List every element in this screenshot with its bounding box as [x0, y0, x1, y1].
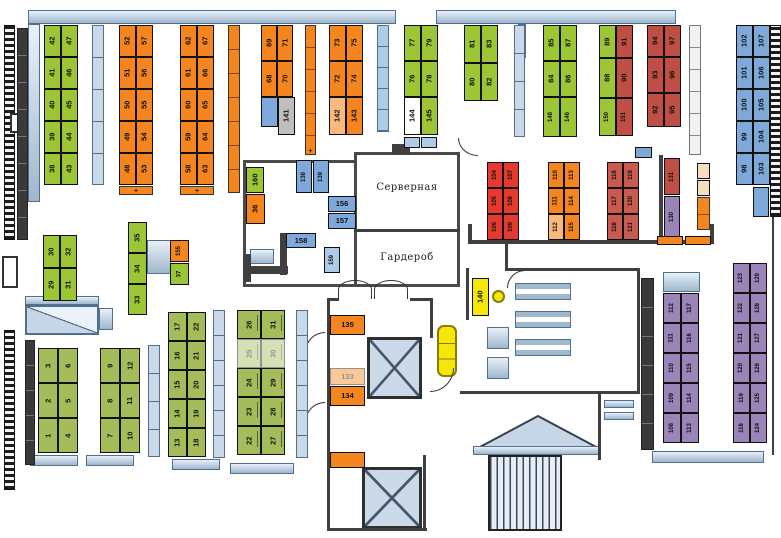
room-divider-wall — [354, 229, 460, 232]
desk-129[interactable]: 129 — [750, 263, 767, 293]
desk-68[interactable]: 68 — [261, 61, 277, 97]
desk-42[interactable]: 42 — [44, 25, 61, 57]
desk-24[interactable]: 24 — [237, 368, 261, 397]
desk-cell[interactable] — [421, 137, 437, 148]
desk-50[interactable]: 50 — [119, 89, 136, 121]
desk-77[interactable]: 77 — [404, 25, 421, 61]
desk-109[interactable]: 109 — [503, 214, 519, 240]
desk-155[interactable]: 155 — [170, 240, 189, 262]
shelf: + — [180, 186, 214, 195]
desk-67[interactable]: 67 — [197, 25, 214, 57]
wall — [460, 391, 640, 394]
desk-144[interactable]: 144 — [404, 97, 421, 135]
desk-52[interactable]: 52 — [119, 25, 136, 57]
desk-59[interactable]: 59 — [180, 121, 197, 153]
wall — [430, 298, 433, 338]
meeting-table — [516, 284, 570, 299]
desk-cell[interactable] — [685, 236, 711, 245]
desk-31[interactable]: 31 — [261, 310, 285, 339]
server-room-label: Серверная — [357, 182, 457, 193]
desk-110[interactable]: 110 — [663, 353, 681, 383]
desk-112[interactable]: 112 — [548, 214, 564, 240]
wall — [505, 243, 508, 270]
desk-76[interactable]: 76 — [404, 61, 421, 97]
desk-32[interactable]: 32 — [60, 235, 77, 268]
desk-99[interactable]: 99 — [736, 121, 753, 153]
desk-29[interactable]: 29 — [43, 268, 60, 301]
desk-30[interactable]: 30 — [261, 339, 285, 368]
desk-47[interactable]: 47 — [61, 25, 78, 57]
desk-134[interactable]: 134 — [330, 386, 365, 406]
desk-151[interactable]: 151 — [616, 98, 633, 136]
table — [147, 240, 171, 274]
double-door-arc — [374, 280, 408, 299]
stool — [492, 290, 505, 303]
desk-97[interactable]: 97 — [664, 25, 681, 57]
desk-78[interactable]: 78 — [421, 61, 438, 97]
floor-plan: Серверная Гардероб — [0, 0, 781, 538]
desk-87[interactable]: 87 — [560, 25, 577, 61]
shelf — [296, 310, 308, 458]
wall — [505, 268, 640, 271]
desk-133[interactable]: 133 — [330, 368, 365, 385]
desk-23[interactable]: 23 — [237, 397, 261, 426]
table — [487, 327, 509, 349]
desk-119[interactable]: 119 — [733, 383, 750, 413]
shelf — [377, 25, 389, 132]
desk-70[interactable]: 70 — [277, 61, 293, 97]
door-arc — [458, 138, 478, 156]
desk-85[interactable]: 85 — [543, 25, 560, 61]
wall — [466, 268, 469, 320]
desk-107[interactable]: 107 — [503, 162, 519, 188]
desk-40[interactable]: 40 — [44, 89, 61, 121]
desk-82[interactable]: 82 — [481, 63, 498, 101]
desk-69[interactable]: 69 — [261, 25, 277, 61]
desk-93[interactable]: 93 — [647, 57, 664, 93]
desk-15[interactable]: 15 — [168, 370, 187, 399]
desk-cell[interactable] — [697, 163, 710, 179]
desk-16[interactable]: 16 — [168, 341, 187, 370]
desk-83[interactable]: 83 — [481, 25, 498, 63]
desk-25[interactable]: 25 — [237, 339, 261, 368]
desk-10[interactable]: 10 — [120, 418, 140, 453]
desk-95[interactable]: 95 — [664, 93, 681, 127]
desk-cell[interactable] — [657, 236, 683, 245]
desk-112[interactable]: 112 — [663, 293, 681, 323]
desk-120[interactable]: 120 — [623, 188, 639, 214]
desk-2[interactable]: 2 — [38, 383, 58, 418]
top-wall — [436, 10, 676, 24]
desk-101[interactable]: 101 — [736, 57, 753, 89]
desk-3[interactable]: 3 — [38, 348, 58, 383]
shelf: + — [119, 186, 153, 195]
desk-131[interactable]: 131 — [664, 158, 680, 195]
door-arc — [305, 332, 325, 352]
hatched-wall — [770, 25, 781, 217]
desk-14[interactable]: 14 — [168, 399, 187, 428]
desk-145[interactable]: 145 — [421, 97, 438, 135]
desk-22[interactable]: 22 — [237, 426, 261, 455]
desk-79[interactable]: 79 — [421, 25, 438, 61]
desk-26[interactable]: 26 — [237, 310, 261, 339]
desk-102[interactable]: 102 — [736, 25, 753, 57]
right-wall — [772, 217, 774, 455]
shelf: + — [305, 25, 316, 155]
desk-146[interactable]: 146 — [560, 97, 577, 137]
desk-86[interactable]: 86 — [560, 61, 577, 97]
desk-122[interactable]: 122 — [733, 293, 750, 323]
shelf — [213, 310, 225, 458]
desk-48[interactable]: 48 — [119, 153, 136, 185]
desk-115[interactable]: 115 — [564, 214, 580, 240]
desk-41[interactable]: 41 — [44, 57, 61, 89]
desk-111[interactable]: 111 — [548, 188, 564, 214]
desk-118[interactable]: 118 — [733, 413, 750, 443]
desk-114[interactable]: 114 — [564, 188, 580, 214]
desk-81[interactable]: 81 — [464, 25, 481, 63]
door-arc — [305, 402, 325, 422]
desk-138[interactable]: 138 — [296, 160, 312, 193]
desk-39[interactable]: 39 — [44, 121, 61, 153]
desk-148[interactable]: 148 — [543, 97, 560, 137]
meeting-table — [516, 312, 570, 327]
desk-63[interactable]: 63 — [197, 153, 214, 185]
desk-66[interactable]: 66 — [197, 57, 214, 89]
desk-cell[interactable] — [753, 187, 769, 217]
desk-128[interactable]: 128 — [750, 293, 767, 323]
desk-27[interactable]: 27 — [261, 426, 285, 455]
desk-104[interactable]: 104 — [487, 162, 503, 188]
desk-34[interactable]: 34 — [128, 253, 147, 284]
desk-89[interactable]: 89 — [599, 25, 616, 58]
desk-130[interactable]: 130 — [664, 196, 680, 238]
desk-cell[interactable] — [404, 137, 420, 148]
wall-cabinets — [25, 340, 35, 465]
desk-158[interactable]: 158 — [286, 233, 316, 248]
elevator — [362, 467, 422, 529]
desk-35[interactable]: 35 — [128, 222, 147, 253]
desk-19[interactable]: 19 — [187, 399, 206, 428]
desk-57[interactable]: 57 — [136, 25, 153, 57]
desk-92[interactable]: 92 — [647, 93, 664, 127]
desk-53[interactable]: 53 — [136, 153, 153, 185]
desk-21[interactable]: 21 — [187, 341, 206, 370]
top-wall — [28, 10, 396, 24]
desk-143[interactable]: 143 — [346, 97, 363, 135]
desk-29[interactable]: 29 — [261, 368, 285, 397]
radiator — [172, 459, 220, 470]
desk-6[interactable]: 6 — [58, 348, 78, 383]
desk-cell[interactable] — [635, 147, 652, 158]
radiator — [230, 463, 294, 474]
ramp — [25, 305, 99, 335]
desk-61[interactable]: 61 — [180, 57, 197, 89]
desk-84[interactable]: 84 — [543, 61, 560, 97]
desk-8[interactable]: 8 — [100, 383, 120, 418]
desk-28[interactable]: 28 — [261, 397, 285, 426]
desk-150[interactable]: 150 — [599, 98, 616, 136]
hatched-wall — [4, 330, 15, 490]
wardrobe-label: Гардероб — [357, 252, 457, 263]
wall-cabinets — [17, 28, 28, 240]
desk-113[interactable]: 113 — [681, 413, 699, 443]
desk-88[interactable]: 88 — [599, 58, 616, 98]
wall — [410, 298, 432, 301]
desk-135[interactable]: 135 — [330, 315, 365, 335]
desk-11[interactable]: 11 — [120, 383, 140, 418]
desk-1[interactable]: 1 — [38, 418, 58, 453]
desk-44[interactable]: 44 — [61, 121, 78, 153]
desk-110[interactable]: 110 — [548, 162, 564, 188]
desk-126[interactable]: 126 — [750, 353, 767, 383]
desk-37[interactable]: 37 — [170, 263, 189, 285]
radiator — [604, 412, 634, 420]
left-wall — [28, 24, 40, 202]
wall — [423, 455, 426, 530]
desk-156[interactable]: 156 — [328, 196, 356, 212]
desk-12[interactable]: 12 — [120, 348, 140, 383]
desk-55[interactable]: 55 — [136, 89, 153, 121]
desk-106[interactable]: 106 — [487, 214, 503, 240]
desk-73[interactable]: 73 — [329, 25, 346, 61]
desk-64[interactable]: 64 — [197, 121, 214, 153]
desk-117[interactable]: 117 — [607, 188, 623, 214]
desk-72[interactable]: 72 — [329, 61, 346, 97]
ramp-step — [99, 308, 113, 330]
desk-157[interactable]: 157 — [328, 213, 356, 229]
desk-96[interactable]: 96 — [664, 57, 681, 93]
desk-54[interactable]: 54 — [136, 121, 153, 153]
wall — [327, 528, 427, 531]
desk-71[interactable]: 71 — [277, 25, 293, 61]
desk-58[interactable]: 58 — [180, 153, 197, 185]
desk-cell[interactable] — [261, 97, 278, 127]
desk-111[interactable]: 111 — [663, 323, 681, 353]
desk-13[interactable]: 13 — [168, 428, 187, 457]
desk-56[interactable]: 56 — [136, 57, 153, 89]
wall-block — [250, 266, 288, 274]
shelf — [148, 345, 160, 457]
desk-105[interactable]: 105 — [487, 188, 503, 214]
wall — [637, 268, 640, 394]
shelf — [228, 25, 240, 193]
desk-140[interactable]: 140 — [472, 278, 489, 316]
table — [250, 249, 274, 264]
desk-117[interactable]: 117 — [681, 293, 699, 323]
desk-31[interactable]: 31 — [60, 268, 77, 301]
desk-103[interactable]: 103 — [753, 153, 770, 185]
desk-114[interactable]: 114 — [681, 383, 699, 413]
desk-160[interactable]: 160 — [246, 167, 264, 193]
desk-43[interactable]: 43 — [61, 153, 78, 185]
desk-159[interactable]: 159 — [324, 247, 340, 273]
desk-125[interactable]: 125 — [750, 383, 767, 413]
desk-104[interactable]: 104 — [753, 121, 770, 153]
desk-cell[interactable] — [697, 180, 710, 196]
desk-94[interactable]: 94 — [647, 25, 664, 57]
desk-75[interactable]: 75 — [346, 25, 363, 61]
desk-91[interactable]: 91 — [616, 25, 633, 58]
desk-139[interactable]: 139 — [313, 160, 329, 193]
desk-118[interactable]: 118 — [607, 214, 623, 240]
desk-51[interactable]: 51 — [119, 57, 136, 89]
stairs-rail — [473, 446, 601, 455]
desk-20[interactable]: 20 — [187, 370, 206, 399]
desk-109[interactable]: 109 — [663, 383, 681, 413]
desk-74[interactable]: 74 — [346, 61, 363, 97]
desk-46[interactable]: 46 — [61, 57, 78, 89]
desk-cell[interactable] — [330, 452, 365, 468]
desk-142[interactable]: 142 — [329, 97, 346, 135]
desk-121[interactable]: 121 — [733, 323, 750, 353]
radiator — [652, 451, 764, 463]
desk-108[interactable]: 108 — [503, 188, 519, 214]
desk-141[interactable]: 141 — [278, 97, 295, 135]
desk-60[interactable]: 60 — [180, 89, 197, 121]
desk-80[interactable]: 80 — [464, 63, 481, 101]
desk-113[interactable]: 113 — [564, 162, 580, 188]
shelf — [689, 25, 701, 155]
table — [663, 272, 700, 292]
radiator — [86, 455, 134, 466]
wall-niche — [2, 256, 18, 288]
desk-62[interactable]: 62 — [180, 25, 197, 57]
wall-cabinets — [641, 278, 654, 450]
shelf — [92, 25, 104, 185]
desk-65[interactable]: 65 — [197, 89, 214, 121]
desk-90[interactable]: 90 — [616, 58, 633, 98]
desk-36[interactable]: 36 — [246, 194, 265, 224]
desk-105[interactable]: 105 — [753, 89, 770, 121]
stairs-landing — [476, 412, 600, 450]
stairs — [488, 455, 562, 531]
shelf — [697, 197, 710, 230]
desk-45[interactable]: 45 — [61, 89, 78, 121]
desk-49[interactable]: 49 — [119, 121, 136, 153]
desk-7[interactable]: 7 — [100, 418, 120, 453]
desk-116[interactable]: 116 — [681, 323, 699, 353]
desk-121[interactable]: 121 — [623, 214, 639, 240]
desk-115[interactable]: 115 — [681, 353, 699, 383]
desk-124[interactable]: 124 — [750, 413, 767, 443]
desk-116[interactable]: 116 — [607, 162, 623, 188]
wall-block — [243, 254, 251, 282]
server-room — [354, 152, 460, 287]
desk-5[interactable]: 5 — [58, 383, 78, 418]
double-door-arc — [338, 280, 372, 299]
desk-17[interactable]: 17 — [168, 312, 187, 341]
desk-22[interactable]: 22 — [187, 312, 206, 341]
desk-120[interactable]: 120 — [733, 353, 750, 383]
desk-100[interactable]: 100 — [736, 89, 753, 121]
desk-108[interactable]: 108 — [663, 413, 681, 443]
desk-107[interactable]: 107 — [753, 25, 770, 57]
radiator — [30, 455, 78, 466]
door-arc — [430, 368, 454, 392]
desk-119[interactable]: 119 — [623, 162, 639, 188]
meeting-table — [516, 340, 570, 355]
desk-18[interactable]: 18 — [187, 428, 206, 457]
desk-4[interactable]: 4 — [58, 418, 78, 453]
desk-38[interactable]: 38 — [44, 153, 61, 185]
desk-123[interactable]: 123 — [733, 263, 750, 293]
desk-98[interactable]: 98 — [736, 153, 753, 185]
wall — [468, 224, 472, 242]
desk-33[interactable]: 33 — [128, 284, 147, 315]
desk-9[interactable]: 9 — [100, 348, 120, 383]
table — [487, 357, 509, 379]
desk-30[interactable]: 30 — [43, 235, 60, 268]
wall — [598, 394, 601, 460]
radiator — [604, 400, 634, 408]
desk-127[interactable]: 127 — [750, 323, 767, 353]
desk-106[interactable]: 106 — [753, 57, 770, 89]
elevator — [367, 337, 422, 399]
wall — [659, 155, 663, 241]
shelf — [514, 25, 525, 137]
